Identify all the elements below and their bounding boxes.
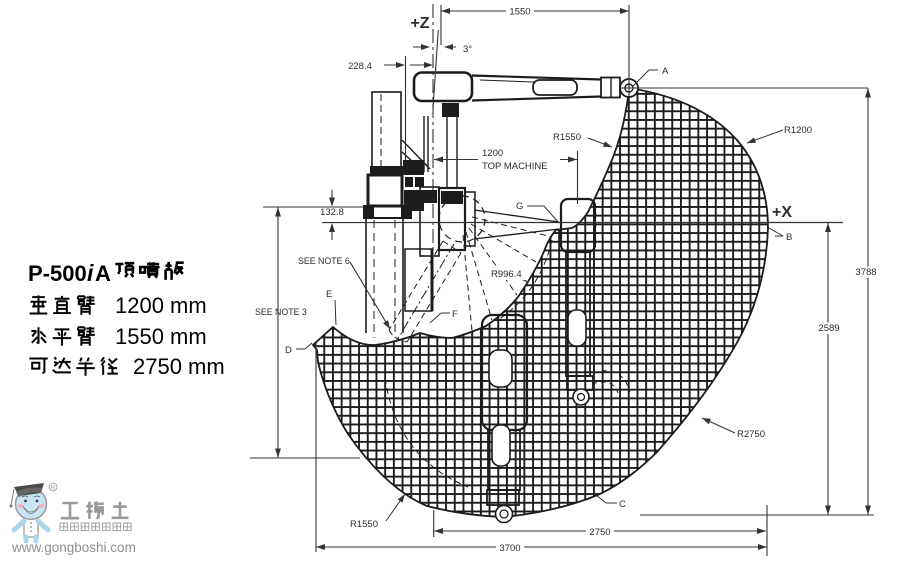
svg-text:A: A [662,66,669,77]
svg-text:TOP MACHINE: TOP MACHINE [482,161,548,172]
svg-text:i: i [87,260,94,286]
svg-text:R: R [51,486,56,492]
svg-text:3788: 3788 [855,267,876,278]
svg-text:G: G [516,201,523,212]
svg-text:SEE NOTE 6: SEE NOTE 6 [298,256,350,266]
svg-text:B: B [786,232,792,243]
svg-text:228.4: 228.4 [348,61,372,72]
svg-text:R2750: R2750 [737,429,765,440]
svg-text:D: D [285,345,292,356]
svg-text:R996.4: R996.4 [491,269,522,280]
svg-text:1550: 1550 [509,7,530,18]
svg-text:P-500: P-500 [28,261,87,286]
svg-text:1550 mm: 1550 mm [115,324,207,349]
svg-text:3700: 3700 [499,543,520,554]
svg-text:E: E [326,289,332,300]
svg-text:2750: 2750 [589,527,610,538]
svg-text:1200 mm: 1200 mm [115,293,207,318]
svg-text:+X: +X [772,204,792,221]
svg-text:C: C [619,499,626,510]
svg-text:R1200: R1200 [784,125,812,136]
svg-text:F: F [452,309,458,320]
svg-text:2589: 2589 [818,323,839,334]
svg-text:www.gongboshi.com: www.gongboshi.com [11,540,136,555]
svg-text:3°: 3° [463,44,472,55]
svg-text:R1550: R1550 [350,519,378,530]
svg-text:2750 mm: 2750 mm [133,354,225,379]
svg-text:A: A [95,261,111,286]
svg-text:132.8: 132.8 [320,207,344,218]
svg-text:+Z: +Z [410,15,429,32]
svg-text:R1550: R1550 [553,132,581,143]
svg-text:SEE NOTE 3: SEE NOTE 3 [255,307,307,317]
svg-text:1200: 1200 [482,148,503,159]
